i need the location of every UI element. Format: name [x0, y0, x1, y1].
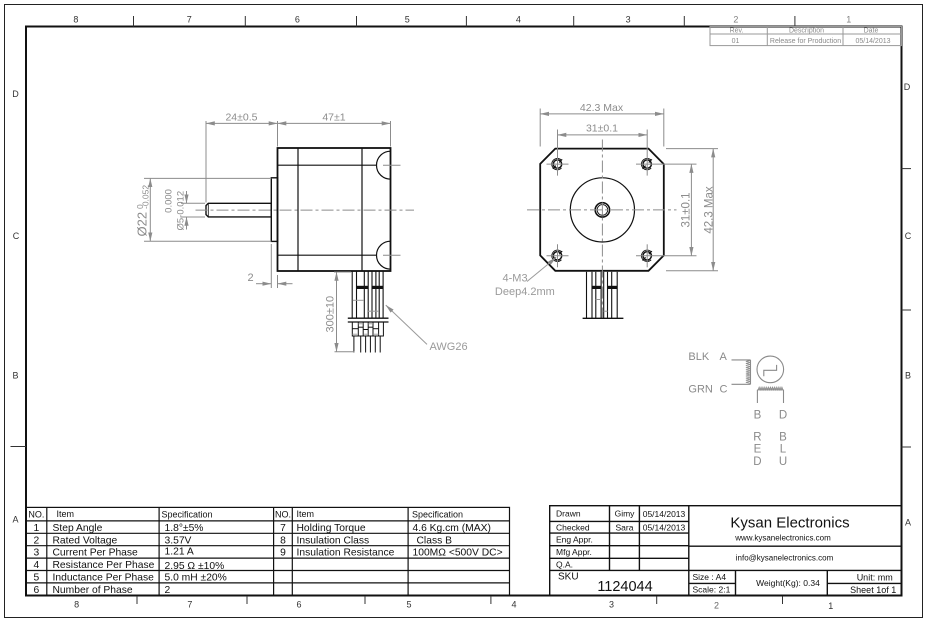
svg-text:C: C: [720, 383, 728, 395]
svg-text:3: 3: [34, 548, 40, 559]
svg-text:5.0 mH ±20%: 5.0 mH ±20%: [165, 573, 227, 584]
svg-text:42.3 Max: 42.3 Max: [703, 186, 715, 234]
svg-text:47±1: 47±1: [322, 111, 345, 123]
svg-text:L: L: [780, 444, 787, 456]
svg-text:2: 2: [714, 601, 719, 611]
svg-text:Deep4.2mm: Deep4.2mm: [495, 286, 555, 298]
svg-text:Unit: mm: Unit: mm: [857, 572, 893, 582]
svg-text:4: 4: [516, 15, 521, 25]
svg-text:Scale: 2:1: Scale: 2:1: [693, 585, 731, 595]
svg-text:3.57V: 3.57V: [165, 535, 192, 546]
svg-text:Mfg Appr.: Mfg Appr.: [556, 547, 592, 557]
svg-text:D: D: [12, 89, 19, 99]
svg-text:8: 8: [74, 600, 79, 610]
svg-text:2: 2: [34, 535, 40, 546]
svg-text:05/14/2013: 05/14/2013: [643, 523, 686, 533]
svg-text:8: 8: [280, 535, 286, 546]
svg-text:Drawn: Drawn: [556, 509, 581, 519]
svg-text:SKU: SKU: [558, 572, 579, 583]
svg-text:3: 3: [609, 600, 614, 610]
svg-text:Sara: Sara: [616, 522, 634, 532]
svg-text:7: 7: [187, 600, 192, 610]
svg-text:7: 7: [187, 15, 192, 25]
svg-text:31±0.1: 31±0.1: [586, 123, 618, 135]
svg-text:Gimy: Gimy: [615, 509, 636, 519]
svg-text:3: 3: [626, 15, 631, 25]
svg-text:Specification: Specification: [412, 510, 463, 520]
svg-text:Eng Appr.: Eng Appr.: [556, 535, 593, 545]
svg-text:BLK: BLK: [688, 351, 709, 363]
svg-text:5: 5: [34, 573, 40, 584]
svg-text:1: 1: [828, 601, 833, 611]
svg-text:Size : A4: Size : A4: [693, 572, 727, 582]
svg-text:AWG26: AWG26: [430, 341, 468, 353]
svg-text:1: 1: [846, 15, 851, 25]
svg-text:5: 5: [405, 15, 410, 25]
svg-text:NO.: NO.: [28, 510, 44, 520]
svg-text:U: U: [779, 456, 787, 468]
svg-text:A: A: [12, 515, 18, 525]
svg-text:31±0.1: 31±0.1: [681, 192, 693, 227]
svg-text:C: C: [13, 231, 20, 241]
svg-text:Release for Production: Release for Production: [770, 38, 841, 45]
svg-text:www.kysanelectronics.com: www.kysanelectronics.com: [734, 533, 831, 542]
svg-text:Rev.: Rev.: [730, 27, 744, 34]
svg-text:Step Angle: Step Angle: [53, 523, 103, 534]
svg-text:B: B: [905, 371, 911, 381]
svg-text:5: 5: [406, 600, 411, 610]
svg-text:1: 1: [34, 523, 40, 534]
svg-text:05/14/2013: 05/14/2013: [855, 38, 890, 45]
svg-text:GRN: GRN: [688, 383, 713, 395]
svg-text:300±10: 300±10: [325, 296, 337, 333]
svg-text:05/14/2013: 05/14/2013: [643, 509, 686, 519]
svg-text:A: A: [905, 518, 911, 528]
svg-text:Item: Item: [297, 509, 315, 519]
svg-text:Ø5-0.012: Ø5-0.012: [176, 191, 187, 231]
svg-text:24±0.5: 24±0.5: [225, 111, 257, 123]
svg-text:01: 01: [732, 38, 740, 45]
svg-text:9: 9: [280, 548, 286, 559]
svg-text:100MΩ <500V DC>: 100MΩ <500V DC>: [413, 548, 503, 559]
svg-text:4: 4: [511, 600, 516, 610]
svg-text:42.3 Max: 42.3 Max: [580, 102, 624, 114]
svg-text:Rated Voltage: Rated Voltage: [53, 535, 118, 546]
svg-text:Sheet 1of 1: Sheet 1of 1: [850, 585, 896, 595]
svg-text:4.6 Kg.cm (MAX): 4.6 Kg.cm (MAX): [413, 523, 491, 534]
svg-text:Holding Torque: Holding Torque: [297, 523, 366, 534]
svg-text:Q.A.: Q.A.: [556, 559, 573, 569]
svg-text:E: E: [754, 444, 762, 456]
svg-text:D: D: [904, 82, 911, 92]
svg-text:2: 2: [733, 15, 738, 25]
svg-text:Checked: Checked: [556, 522, 590, 532]
svg-text:7: 7: [280, 523, 286, 534]
svg-text:6: 6: [295, 15, 300, 25]
svg-text:1.8°±5%: 1.8°±5%: [165, 523, 204, 534]
svg-text:D: D: [779, 410, 787, 422]
svg-text:4-M3: 4-M3: [503, 272, 528, 284]
svg-text:B: B: [754, 410, 762, 422]
svg-text:6: 6: [34, 585, 40, 596]
svg-text:B: B: [779, 431, 787, 443]
svg-text:Weight(Kg): 0.34: Weight(Kg): 0.34: [756, 578, 820, 588]
svg-text:Current Per Phase: Current Per Phase: [53, 548, 139, 559]
svg-text:Inductance Per Phase: Inductance Per Phase: [53, 573, 155, 584]
svg-text:1.21 A: 1.21 A: [165, 547, 194, 558]
svg-text:Specification: Specification: [162, 510, 213, 520]
svg-text:NO.: NO.: [275, 510, 291, 520]
svg-text:0.000: 0.000: [164, 189, 175, 213]
svg-text:Number of Phase: Number of Phase: [53, 585, 133, 596]
svg-text:Description: Description: [789, 27, 824, 34]
svg-text:8: 8: [73, 15, 78, 25]
svg-text:-0.052: -0.052: [141, 185, 151, 209]
svg-text:6: 6: [296, 600, 301, 610]
svg-text:2: 2: [165, 585, 171, 596]
svg-text:Insulation Class: Insulation Class: [297, 535, 370, 546]
svg-text:2.95 Ω ±10%: 2.95 Ω ±10%: [165, 561, 225, 572]
svg-text:1124044: 1124044: [597, 579, 652, 595]
svg-text:A: A: [720, 351, 728, 363]
svg-text:D: D: [753, 456, 761, 468]
svg-text:Kysan Electronics: Kysan Electronics: [730, 514, 849, 531]
svg-text:info@kysanelectronics.com: info@kysanelectronics.com: [736, 554, 834, 563]
svg-text:C: C: [905, 231, 912, 241]
svg-text:Date: Date: [864, 27, 879, 34]
svg-text:4: 4: [34, 560, 40, 571]
svg-text:Class B: Class B: [417, 535, 453, 546]
svg-text:Item: Item: [57, 509, 75, 519]
svg-text:Resistance Per Phase: Resistance Per Phase: [53, 560, 155, 571]
svg-text:R: R: [753, 431, 761, 443]
svg-text:B: B: [12, 371, 18, 381]
svg-text:Ø22: Ø22: [135, 212, 150, 237]
svg-text:2: 2: [247, 272, 253, 284]
svg-text:Insulation Resistance: Insulation Resistance: [297, 548, 395, 559]
